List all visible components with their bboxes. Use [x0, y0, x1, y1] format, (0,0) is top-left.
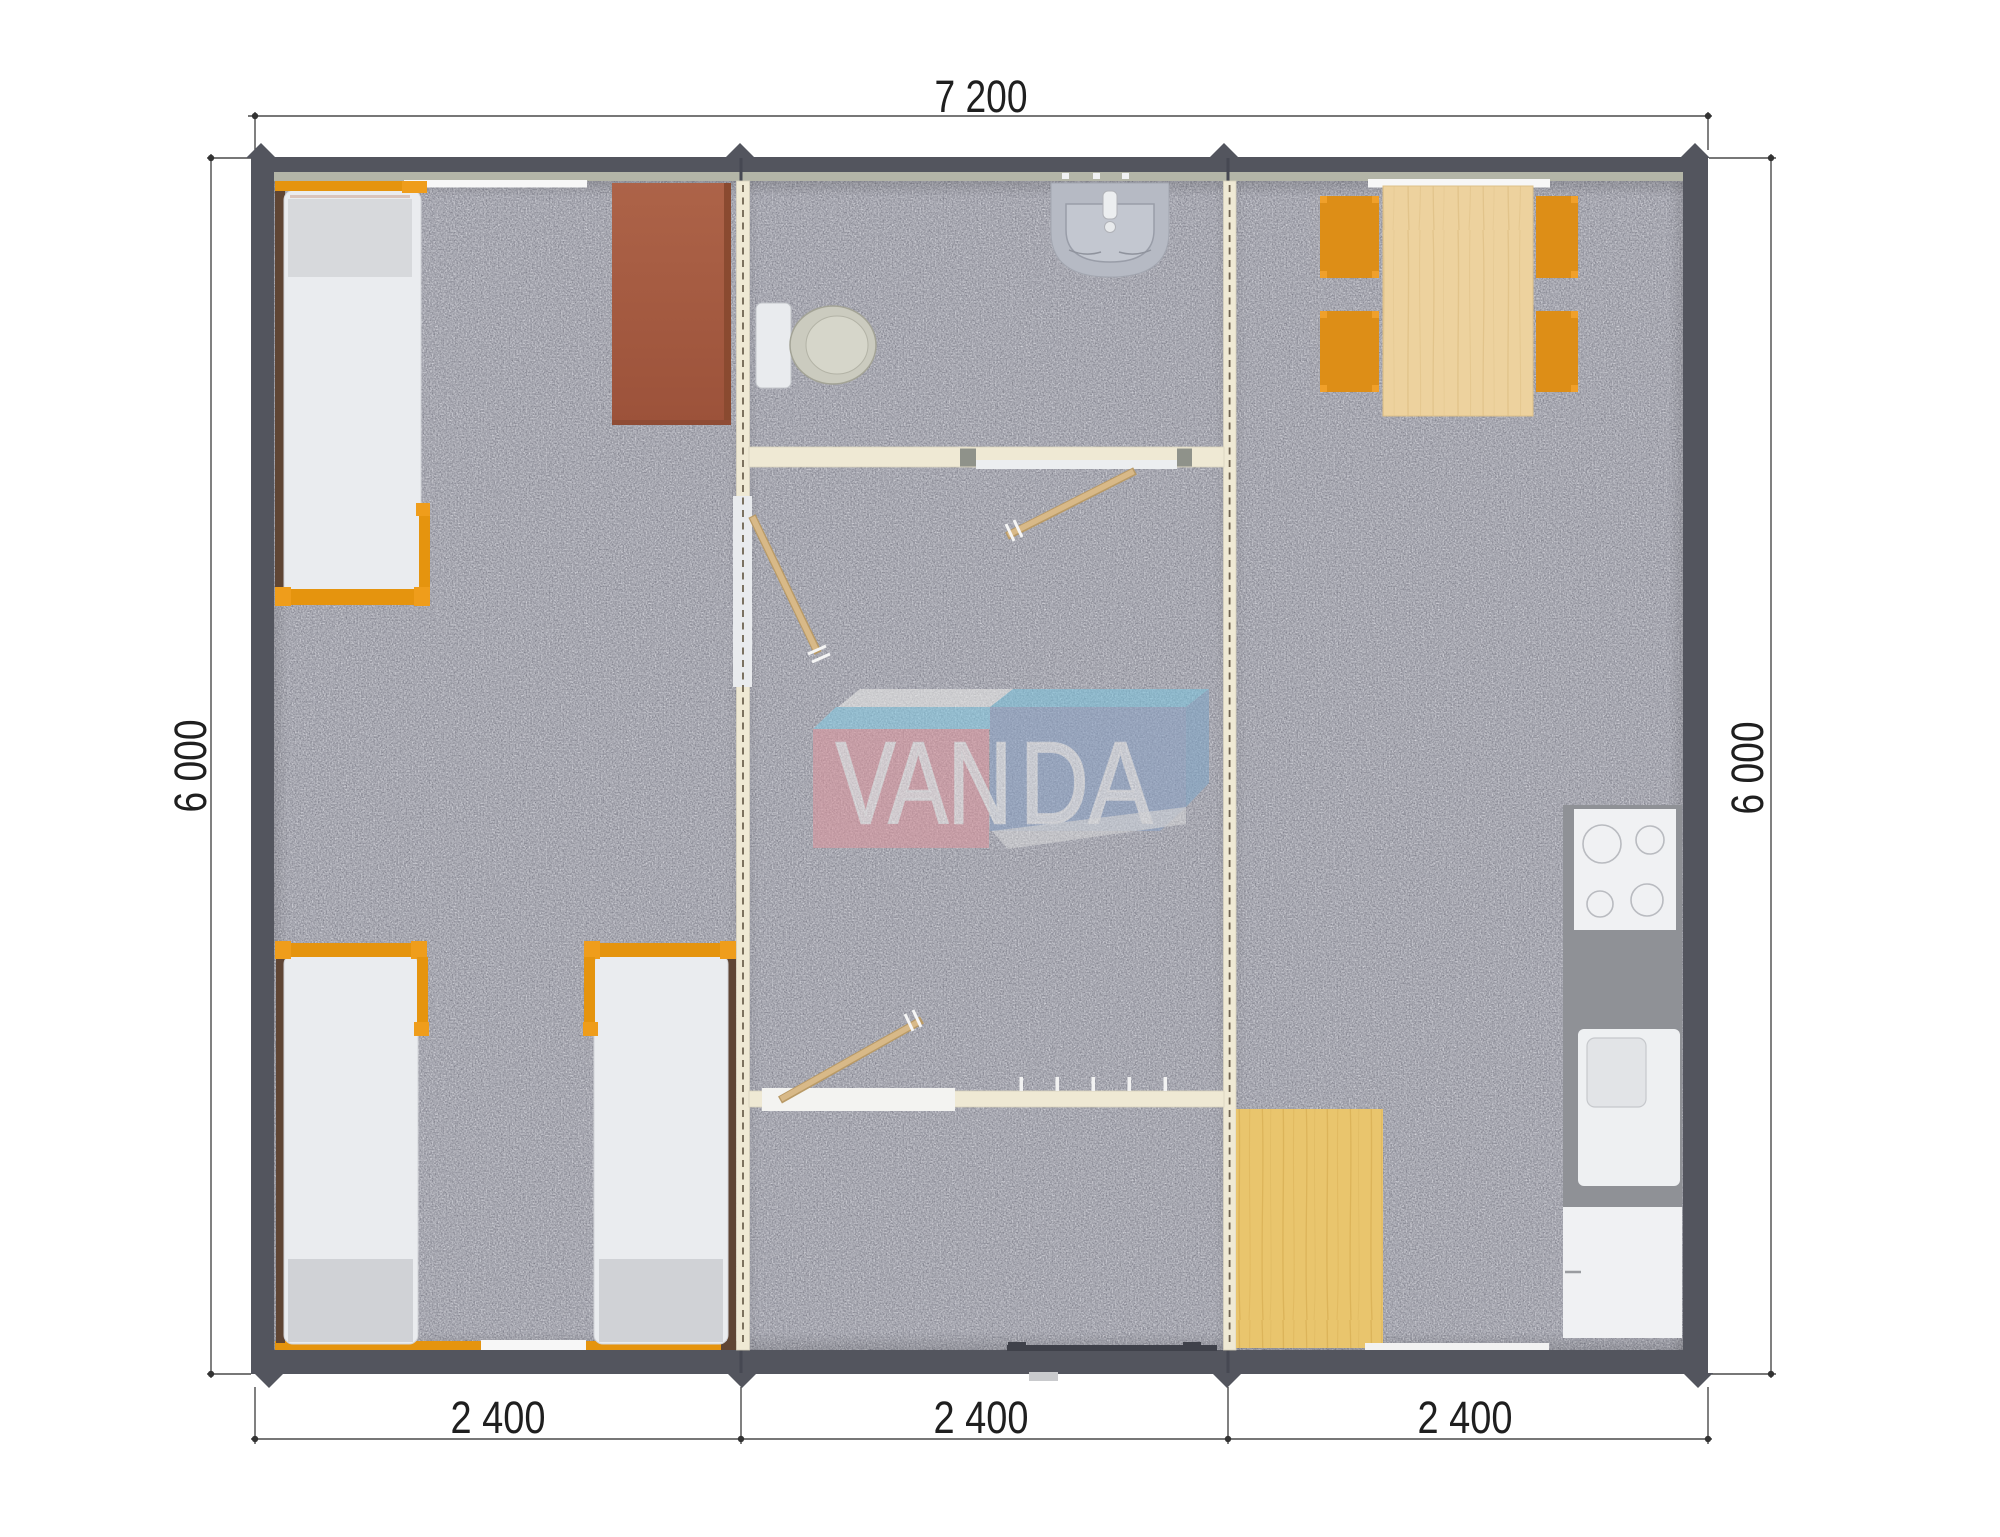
svg-text:2 400: 2 400 — [934, 1392, 1029, 1443]
svg-text:6 000: 6 000 — [1722, 722, 1773, 815]
svg-text:VAN: VAN — [836, 718, 1012, 848]
svg-text:2 400: 2 400 — [451, 1392, 546, 1443]
svg-text:7 200: 7 200 — [935, 71, 1028, 122]
svg-text:2 400: 2 400 — [1418, 1392, 1513, 1443]
svg-text:6 000: 6 000 — [165, 720, 216, 813]
svg-text:DA: DA — [1020, 718, 1153, 848]
